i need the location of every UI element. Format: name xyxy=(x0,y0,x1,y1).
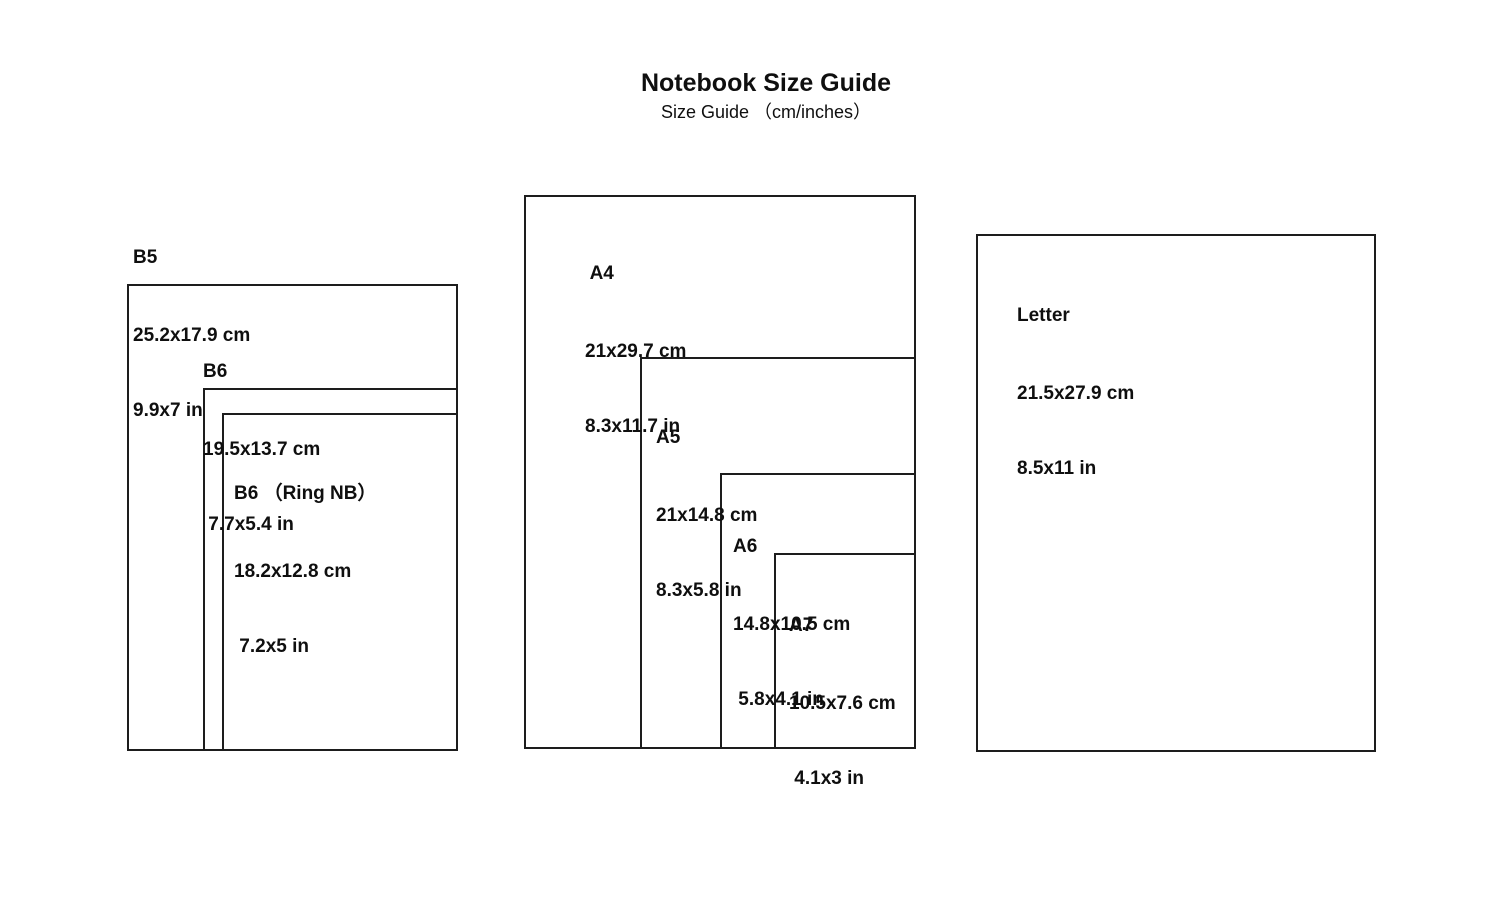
size-dimensions-cm: 21.5x27.9 cm xyxy=(1017,381,1134,406)
size-label-a7: A7 10.5x7.6 cm 4.1x3 in xyxy=(789,563,896,841)
size-name: A4 xyxy=(585,261,686,286)
page-subtitle: Size Guide （cm/inches） xyxy=(661,100,871,124)
size-dimensions-in: 8.5x11 in xyxy=(1017,456,1134,481)
size-dimensions-cm: 18.2x12.8 cm xyxy=(234,559,377,584)
size-label-letter: Letter 21.5x27.9 cm 8.5x11 in xyxy=(1017,253,1134,531)
page-title: Notebook Size Guide xyxy=(641,68,891,98)
size-name: Letter xyxy=(1017,303,1134,328)
size-name: A6 xyxy=(733,534,850,559)
size-dimensions-cm: 21x29.7 cm xyxy=(585,339,686,364)
size-label-b6-ring-nb: B6 （Ring NB） 18.2x12.8 cm 7.2x5 in xyxy=(234,431,377,709)
size-name: A5 xyxy=(656,425,757,450)
size-name: B6 （Ring NB） xyxy=(234,481,377,506)
size-dimensions-in: 4.1x3 in xyxy=(789,766,896,791)
size-name: B6 xyxy=(203,359,320,384)
size-name: B5 xyxy=(133,245,250,270)
size-dimensions-in: 7.2x5 in xyxy=(234,634,377,659)
size-guide-canvas: Notebook Size Guide Size Guide （cm/inche… xyxy=(0,0,1500,917)
size-dimensions-cm: 10.5x7.6 cm xyxy=(789,691,896,716)
size-name: A7 xyxy=(789,613,896,638)
